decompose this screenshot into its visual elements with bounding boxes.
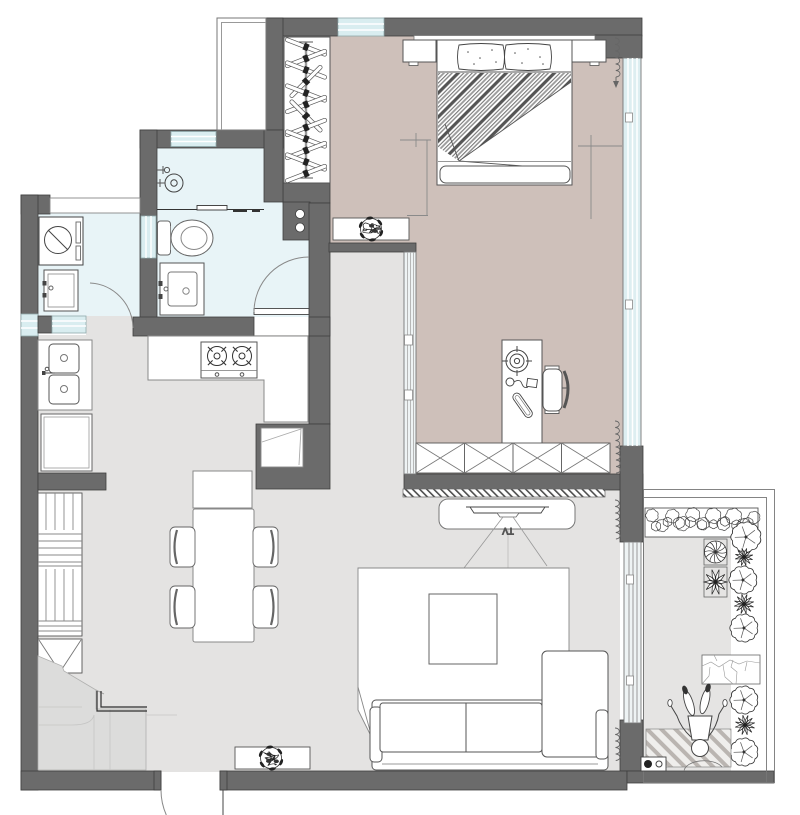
svg-text:TV: TV (502, 526, 514, 536)
